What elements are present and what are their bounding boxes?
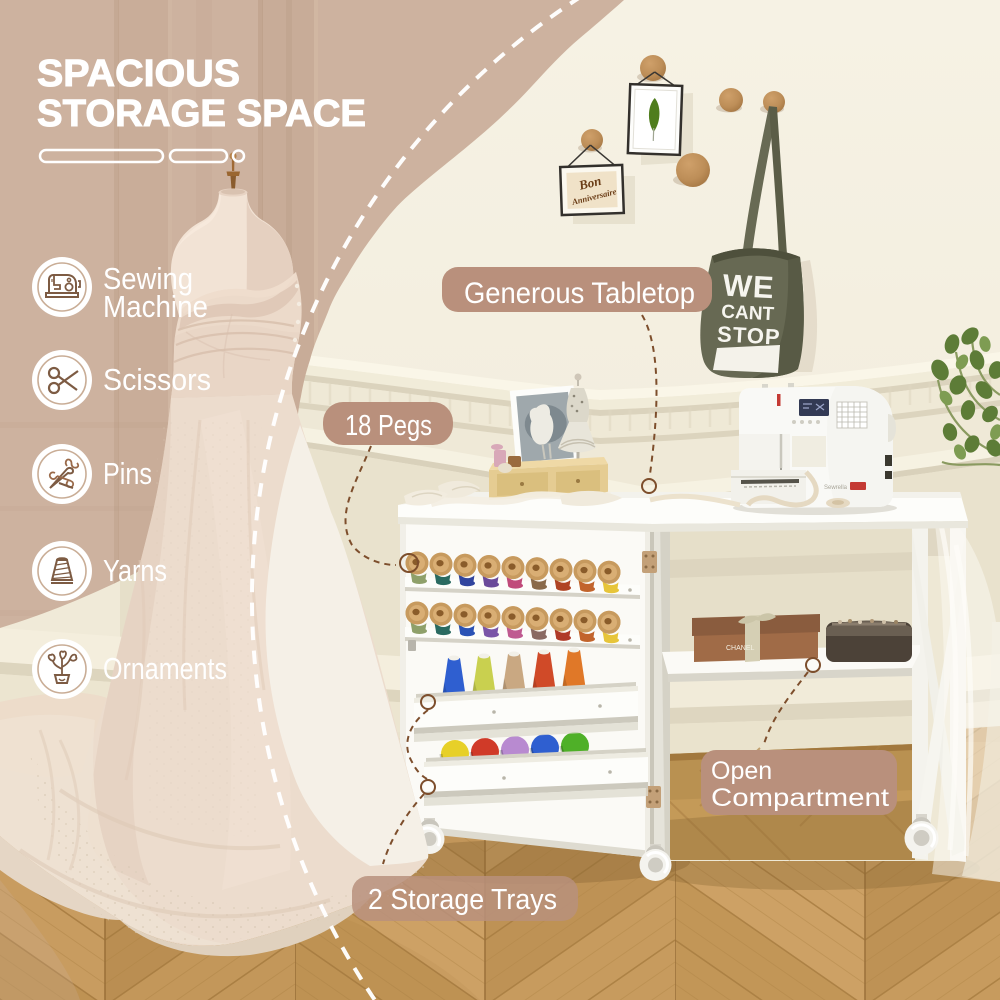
svg-text:Generous Tabletop: Generous Tabletop [464,277,695,310]
svg-text:WE: WE [722,268,776,306]
svg-text:CHANEL: CHANEL [726,645,755,652]
svg-text:18 Pegs: 18 Pegs [345,410,432,442]
svg-text:Ornaments: Ornaments [103,651,227,686]
svg-text:Pins: Pins [103,456,152,491]
svg-text:STOP: STOP [717,321,782,349]
svg-text:Open: Open [711,757,772,785]
svg-text:Yarns: Yarns [103,553,167,588]
svg-text:2 Storage Trays: 2 Storage Trays [368,884,557,916]
svg-text:Scissors: Scissors [103,362,211,397]
svg-text:Compartment: Compartment [711,784,889,812]
svg-text:STORAGE SPACE: STORAGE SPACE [37,93,366,135]
svg-text:Sewrella: Sewrella [824,485,848,491]
svg-text:Machine: Machine [103,289,208,324]
svg-text:SPACIOUS: SPACIOUS [37,53,240,95]
